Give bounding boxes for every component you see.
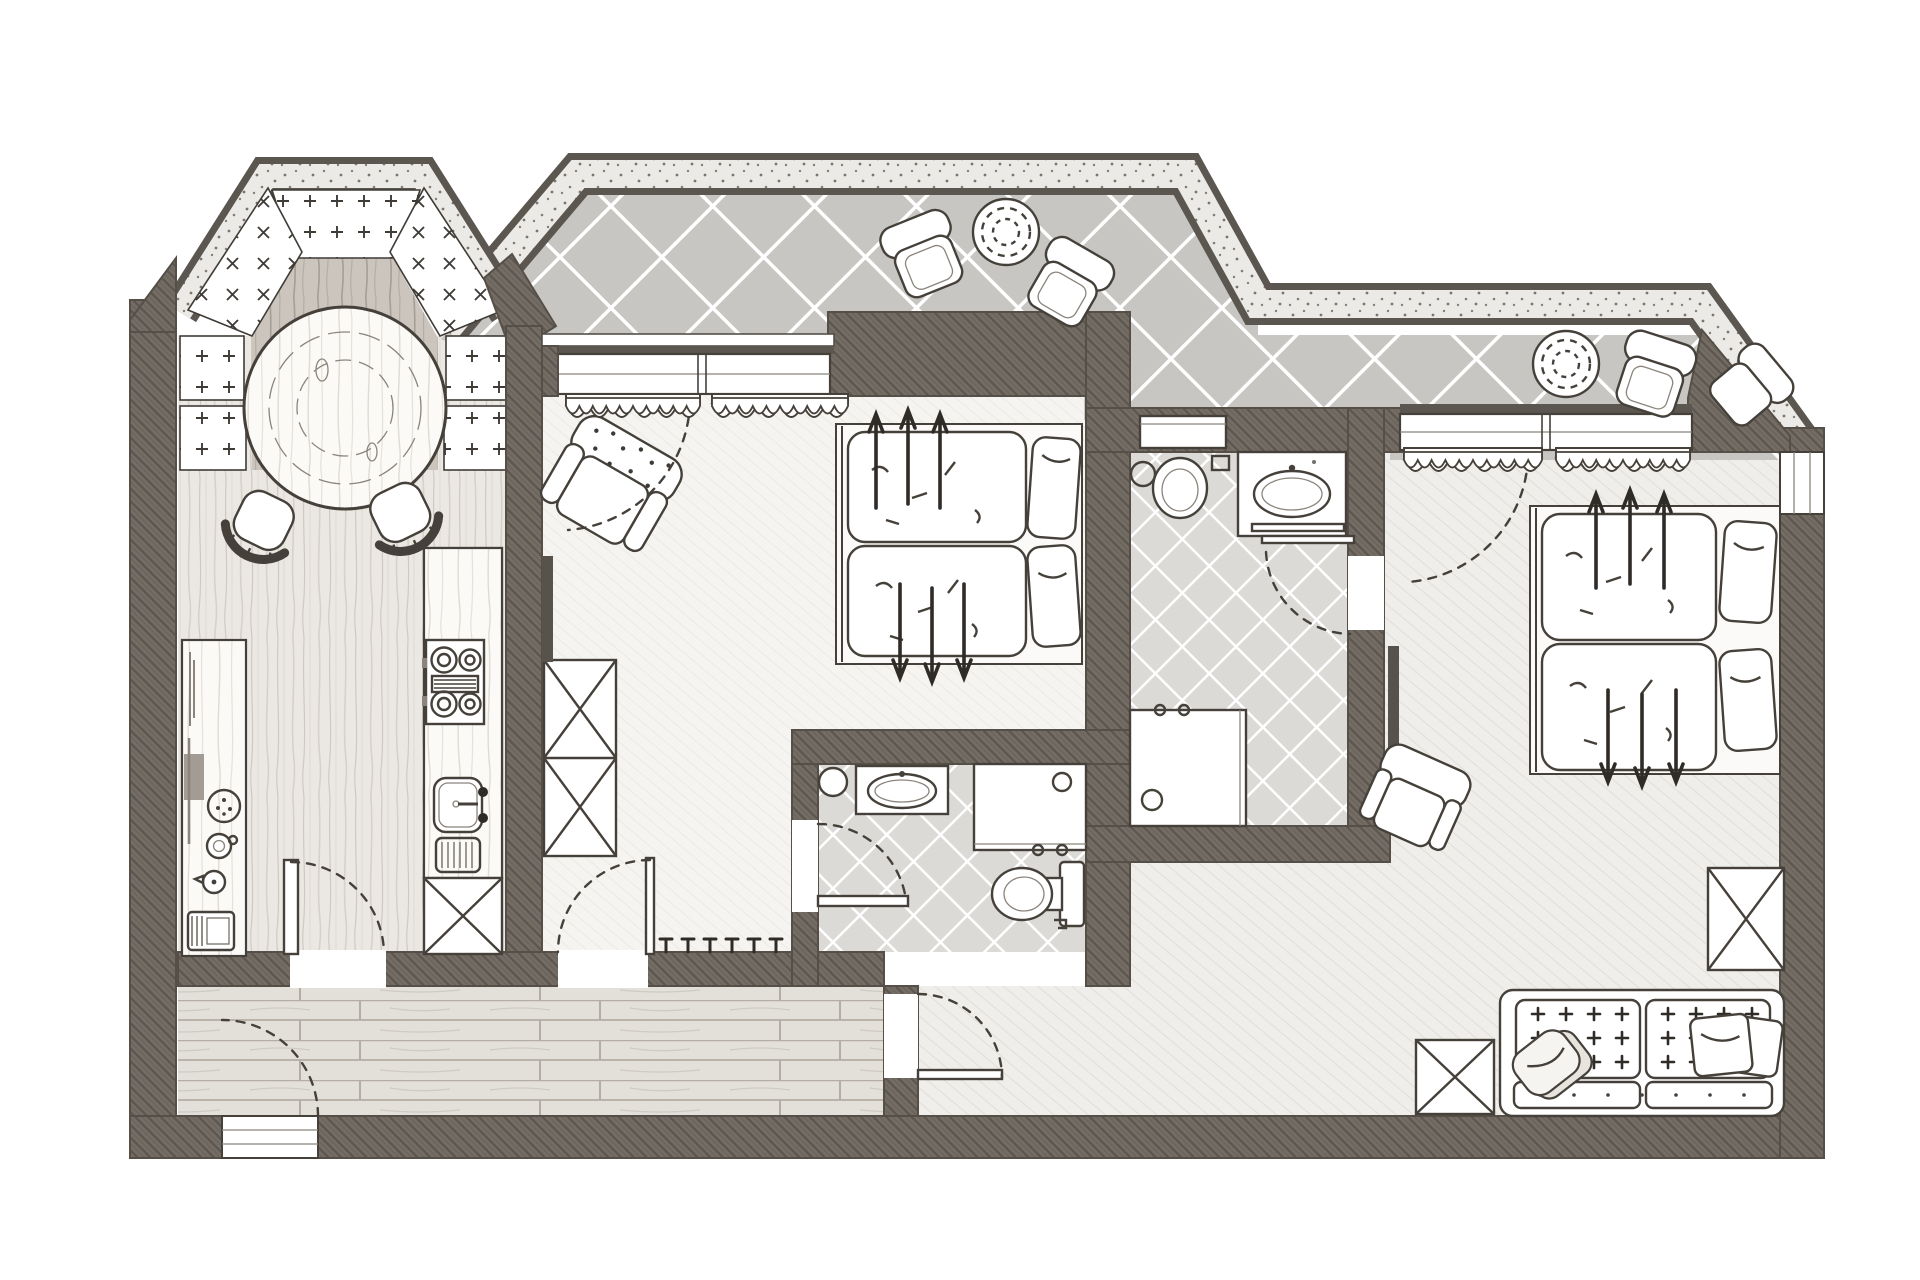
seat-stitch-dot xyxy=(1742,1093,1746,1097)
round-dining-table xyxy=(244,307,446,509)
seat-stitch-dot xyxy=(1572,1093,1576,1097)
entry-door xyxy=(222,1116,318,1158)
double-bed-1 xyxy=(836,410,1082,682)
pillow xyxy=(1719,648,1778,751)
window-sill-panel-east-2 xyxy=(444,406,510,470)
kitchen-counter xyxy=(422,548,502,954)
wall-bedroom1-north-block xyxy=(828,312,1086,396)
mattress xyxy=(1542,644,1716,770)
round-stool xyxy=(819,768,847,796)
floor-plan-drawing xyxy=(0,0,1920,1280)
shower-2 xyxy=(1130,705,1246,826)
seat-stitch-dot xyxy=(1708,1093,1712,1097)
window-bedroom-2-east xyxy=(1780,452,1824,514)
wall-east xyxy=(1780,428,1824,1158)
window-sill-panel-west-1 xyxy=(180,336,244,400)
bathroom-1-door-leaf xyxy=(818,896,908,906)
mattress xyxy=(848,546,1026,656)
wall-bathroom2-north xyxy=(1086,408,1388,452)
wall-west xyxy=(130,300,176,1158)
wall-kitchen-bedroom1 xyxy=(506,326,542,952)
wall-hall-north xyxy=(178,952,884,986)
seat-stitch-dot xyxy=(1674,1093,1678,1097)
kitchen-door-leaf xyxy=(284,860,298,954)
wall-south xyxy=(130,1116,1824,1158)
round-wicker-table-2 xyxy=(1533,331,1599,397)
round-wicker-table-1 xyxy=(973,199,1039,265)
shower-1 xyxy=(974,764,1086,855)
seat-stitch-dot xyxy=(1606,1093,1610,1097)
tall-cabinet-x xyxy=(424,878,502,954)
vanity-sink-1 xyxy=(856,766,948,814)
seat-stitch-dot xyxy=(1640,1093,1644,1097)
wardrobe-x xyxy=(544,660,616,856)
doorway-lounge xyxy=(884,994,918,1078)
cutting-board xyxy=(184,754,204,800)
sofa-two-seat xyxy=(1500,990,1784,1116)
tv-bedroom-1 xyxy=(542,556,553,662)
hallway-floor xyxy=(178,986,884,1116)
sofa-pillow-pair xyxy=(1689,1013,1783,1077)
doorway-kitchen xyxy=(290,950,386,988)
toaster xyxy=(188,912,234,950)
floor-plan-page xyxy=(0,0,1920,1280)
cistern-cabinet xyxy=(1140,416,1226,448)
window-bedroom-1 xyxy=(542,334,834,396)
window-sill-panel-west-2 xyxy=(180,406,246,470)
lounge-door-leaf xyxy=(918,1070,1002,1079)
doorway-bedroom-1 xyxy=(558,950,648,988)
coffee-table-x xyxy=(1416,1040,1494,1114)
cabinet-x-bedroom-2 xyxy=(1708,868,1784,970)
doorway-bathroom-1 xyxy=(792,820,818,912)
cooktop xyxy=(422,640,484,724)
bedroom-1-door-leaf xyxy=(646,858,654,954)
pillow xyxy=(1027,436,1082,539)
pillow xyxy=(1027,544,1082,647)
wall-bathroom2-south xyxy=(1086,826,1390,862)
doorway-bathroom-2 xyxy=(1348,556,1384,630)
pillow xyxy=(1719,520,1778,623)
wall-bay-southwest-wedge xyxy=(130,258,176,332)
sideboard-counter xyxy=(182,640,246,956)
bedroom-2-lounge-floor xyxy=(1130,862,1384,986)
window-sill-panel-east-1 xyxy=(446,336,510,400)
double-bed-2 xyxy=(1530,490,1780,786)
wall-bathroom1-north xyxy=(792,730,1130,764)
